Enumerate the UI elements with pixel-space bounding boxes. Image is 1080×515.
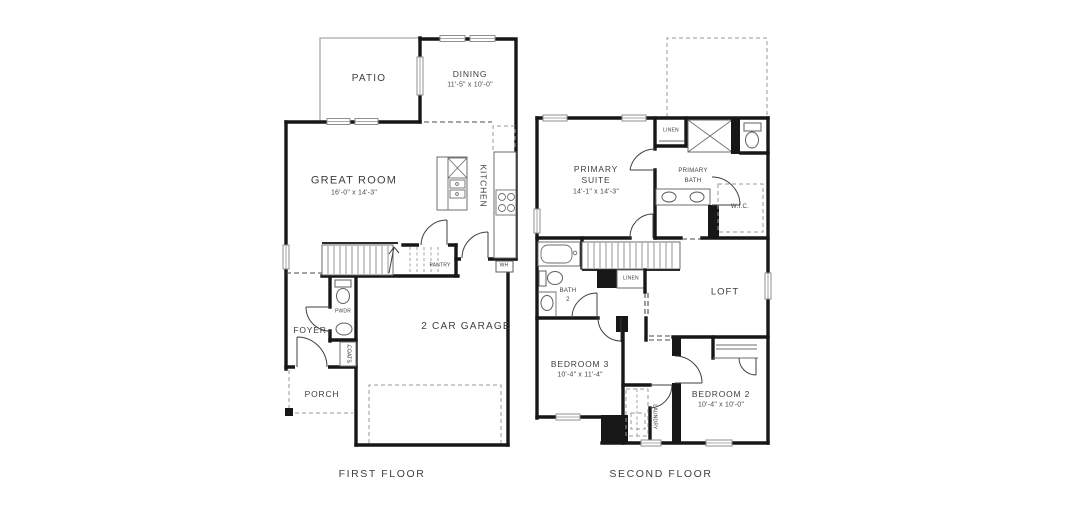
primary-suite-door-arc <box>630 214 653 238</box>
room-label-bedroom2: BEDROOM 2 <box>692 390 750 399</box>
kitchen-island <box>437 157 467 210</box>
room-label-laundry: LAUNDRY <box>652 404 657 429</box>
room-label-garage: 2 CAR GARAGE <box>421 322 510 332</box>
label-linen-hall: LINEN <box>623 277 639 282</box>
room-label-primary-suite-line1: PRIMARY <box>574 165 618 174</box>
room-dims-dining: 11'-5" x 10'-0" <box>447 82 493 89</box>
wic-door-arc <box>712 177 740 205</box>
bedroom2-closet-door-arc <box>739 358 756 375</box>
room-dims-primary-suite: 14'-1" x 14'-3" <box>573 189 619 196</box>
room-label-bath2-line2: 2 <box>566 297 570 303</box>
primary-bath-door-arc <box>630 149 655 170</box>
room-label-patio: PATIO <box>352 74 387 84</box>
room-dims-great-room: 16'-0" x 14'-3" <box>331 190 377 197</box>
room-label-bedroom3: BEDROOM 3 <box>551 360 609 369</box>
bath2-toilet-tank <box>539 271 546 286</box>
label-water-heater: WH <box>500 264 509 269</box>
room-dims-bedroom3: 10'-4" x 11'-4" <box>557 372 603 379</box>
floor-plan-drawing <box>0 0 1080 515</box>
powder-sink <box>336 323 352 335</box>
powder-toilet-tank <box>335 280 351 287</box>
room-label-primary-bath-line2: BATH <box>685 178 702 184</box>
bath2-door-arc <box>572 293 597 318</box>
second-floor-title: SECOND FLOOR <box>609 469 712 480</box>
room-label-porch: PORCH <box>305 390 340 399</box>
room-label-primary-bath-line1: PRIMARY <box>678 168 707 174</box>
room-label-wic: W.I.C. <box>731 204 749 210</box>
room-label-powder: PWDR <box>335 310 351 315</box>
second-floor-drawing <box>534 38 771 446</box>
room-dims-bedroom2: 10'-4" x 10'-0" <box>698 402 744 409</box>
room-label-foyer: FOYER <box>293 326 326 335</box>
label-linen-upper: LINEN <box>663 129 679 134</box>
room-label-pantry: PANTRY <box>429 264 450 269</box>
bath2-sink <box>541 296 553 311</box>
refrigerator <box>493 126 515 150</box>
floor-plan-page: PATIO DINING 11'-5" x 10'-0" GREAT ROOM … <box>0 0 1080 515</box>
room-label-great-room: GREAT ROOM <box>311 176 397 187</box>
label-coats-closet: COATS <box>346 345 351 363</box>
bath2-toilet-bowl <box>548 272 563 285</box>
primary-toilet-bowl <box>746 132 759 148</box>
room-label-primary-suite-line2: SUITE <box>581 176 610 185</box>
room-label-bath2-line1: BATH <box>560 288 577 294</box>
room-label-loft: LOFT <box>711 287 739 297</box>
room-label-dining: DINING <box>453 70 488 79</box>
first-floor-title: FIRST FLOOR <box>339 469 426 480</box>
powder-toilet-bowl <box>337 289 350 304</box>
first-floor-drawing <box>283 36 516 446</box>
room-label-kitchen: KITCHEN <box>479 165 488 208</box>
bedroom2-door-arc <box>675 356 702 383</box>
primary-toilet-tank <box>744 123 761 131</box>
